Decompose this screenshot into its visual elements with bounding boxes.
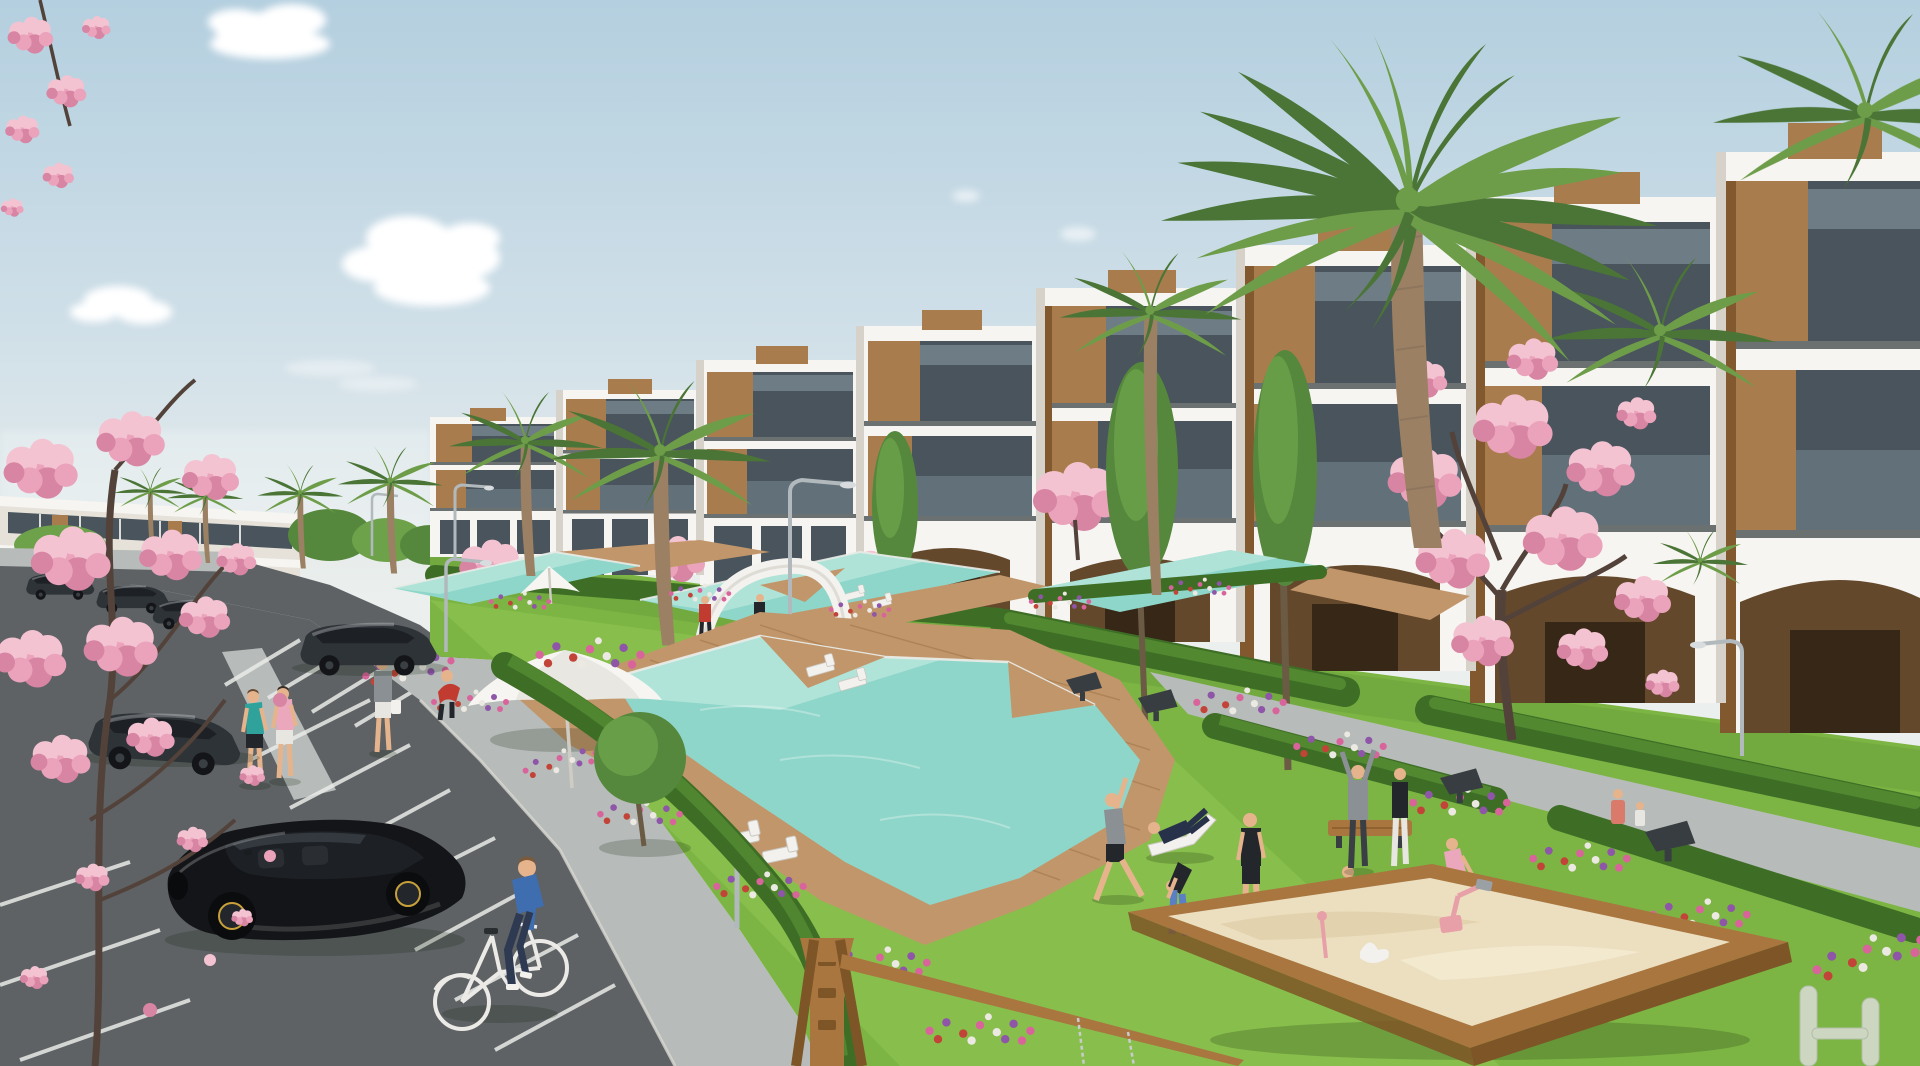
cloud <box>70 286 172 324</box>
cloud <box>952 190 1096 241</box>
building-bay <box>1720 123 1920 733</box>
cloud <box>284 360 418 391</box>
cloud <box>342 216 500 306</box>
scene-canvas <box>0 0 1920 1066</box>
blossom-sprig-top-left <box>1 0 111 217</box>
render-scene <box>0 0 1920 1066</box>
cloud <box>208 4 330 59</box>
